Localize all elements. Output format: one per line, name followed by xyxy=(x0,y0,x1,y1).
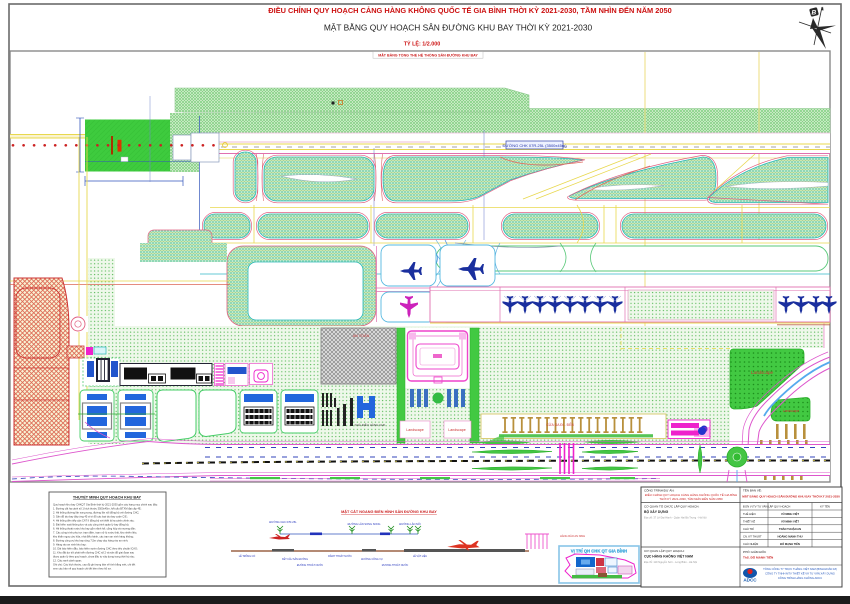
svg-text:Landscape: Landscape xyxy=(448,428,466,432)
svg-text:Landscape: Landscape xyxy=(406,428,424,432)
svg-text:1. Đường cất hạ cánh số 1 kích: 1. Đường cất hạ cánh số 1 kích thước 350… xyxy=(53,507,142,511)
svg-text:ĐIỀU CHỈNH QUY HOẠCH CẢNG HÀNG: ĐIỀU CHỈNH QUY HOẠCH CẢNG HÀNG KHÔNG QUỐ… xyxy=(268,5,671,15)
svg-text:NHÀ ĐIỀU HÀNH CHK: NHÀ ĐIỀU HÀNH CHK xyxy=(355,422,386,427)
svg-text:Quy hoạch khu bay CHKQT Gia Bì: Quy hoạch khu bay CHKQT Gia Bình thời kỳ… xyxy=(53,503,158,507)
svg-text:ĐƯỜNG CHK 07R-25L (3500x45m): ĐƯỜNG CHK 07R-25L (3500x45m) xyxy=(502,143,567,148)
svg-text:LỀ TRỒNG CỎ: LỀ TRỒNG CỎ xyxy=(239,555,256,558)
svg-text:ADCC: ADCC xyxy=(743,578,757,583)
svg-text:MẶT BẰNG QUY HOẠCH SÂN ĐƯỜNG K: MẶT BẰNG QUY HOẠCH SÂN ĐƯỜNG KHU BAY THỜ… xyxy=(324,23,593,33)
svg-text:khu khẩn nguy cứu hỏa, nhà điề: khu khẩn nguy cứu hỏa, nhà điều hành, cá… xyxy=(53,535,134,539)
svg-text:KẾT CẤU SÂN ĐƯỜNG: KẾT CẤU SÂN ĐƯỜNG xyxy=(282,558,308,561)
svg-text:VỊ TRÍ QH CHK QT GIA BÌNH: VỊ TRÍ QH CHK QT GIA BÌNH xyxy=(571,549,627,554)
svg-text:LỀ VẬT LIỆU: LỀ VẬT LIỆU xyxy=(413,555,427,558)
svg-text:MẶT BẰNG TỔNG THỂ HỆ THỐNG SÂN: MẶT BẰNG TỔNG THỂ HỆ THỐNG SÂN ĐƯỜNG KHU… xyxy=(378,53,478,58)
svg-text:2. Hệ thống đường lăn song son: 2. Hệ thống đường lăn song song, đường l… xyxy=(53,511,140,515)
svg-text:CỤC HÀNG KHÔNG VIỆT NAM: CỤC HÀNG KHÔNG VIỆT NAM xyxy=(644,554,693,559)
svg-text:8. Đường công vụ khu bay rộng: 8. Đường công vụ khu bay rộng 7,5m chạy … xyxy=(53,539,128,543)
svg-text:ĐƯỜNG THOÁT NƯỚC: ĐƯỜNG THOÁT NƯỚC xyxy=(297,564,324,567)
svg-text:MƯƠNG THOÁT NƯỚC: MƯƠNG THOÁT NƯỚC xyxy=(382,564,409,567)
svg-text:AN TOÀN: AN TOÀN xyxy=(353,334,370,338)
svg-text:xem các bản vẽ quy hoạch chi t: xem các bản vẽ quy hoạch chi tiết kèm th… xyxy=(53,567,112,571)
svg-text:12. Cây xanh cảnh quan;: 12. Cây xanh cảnh quan; xyxy=(53,559,82,563)
svg-text:MẶT BẰNG QUY HOẠCH SÂN ĐƯỜNG K: MẶT BẰNG QUY HOẠCH SÂN ĐƯỜNG KHU BAY THỜ… xyxy=(742,494,840,499)
svg-text:CƠ QUAN LẬP QUY HOẠCH:: CƠ QUAN LẬP QUY HOẠCH: xyxy=(644,548,685,553)
svg-text:CÔNG TRÌNH/DỰ ÁN:: CÔNG TRÌNH/DỰ ÁN: xyxy=(644,488,675,493)
svg-text:THỜI KỲ 2021-2030, TẦM NHÌN ĐẾ: THỜI KỲ 2021-2030, TẦM NHÌN ĐẾN NĂM 2050 xyxy=(659,496,723,501)
svg-text:HÀNG RÀO AN NINH: HÀNG RÀO AN NINH xyxy=(560,534,585,538)
svg-text:CỬA GA ĐI - ĐẾN: CỬA GA ĐI - ĐẾN xyxy=(546,422,574,427)
svg-text:RÃNH THOÁT NƯỚC: RÃNH THOÁT NƯỚC xyxy=(328,555,352,558)
svg-text:ThS. ĐỖ MẠNH TIẾN: ThS. ĐỖ MẠNH TIẾN xyxy=(743,555,774,560)
svg-text:Địa chỉ: 37 Lê Đại Hành - Quận: Địa chỉ: 37 Lê Đại Hành - Quận Hai Bà Tr… xyxy=(644,516,707,520)
svg-text:10. Dải bảo hiểm đầu, bảo hiểm: 10. Dải bảo hiểm đầu, bảo hiểm sườn đườn… xyxy=(53,547,138,551)
svg-text:Landscape: Landscape xyxy=(751,370,774,375)
svg-text:THUYẾT MINH QUY HOẠCH KHU BAY: THUYẾT MINH QUY HOẠCH KHU BAY xyxy=(73,495,142,500)
svg-text:được quản lý theo quy hoạch, c: được quản lý theo quy hoạch, chưa đầu tư… xyxy=(53,555,135,559)
svg-text:CƠ QUAN TỔ CHỨC LẬP QUY HOẠCH:: CƠ QUAN TỔ CHỨC LẬP QUY HOẠCH: xyxy=(644,504,699,509)
svg-text:4. Hệ thống đèn tiếp cận CAT I: 4. Hệ thống đèn tiếp cận CAT II đồng bộ … xyxy=(53,519,135,523)
svg-text:5. Đài kiểm soát không lưu và: 5. Đài kiểm soát không lưu và các công t… xyxy=(53,523,129,527)
svg-text:TỶ LỆ: 1/2.000: TỶ LỆ: 1/2.000 xyxy=(404,40,441,48)
svg-text:MẶT CẮT NGANG ĐIỂN HÌNH SÂN ĐƯ: MẶT CẮT NGANG ĐIỂN HÌNH SÂN ĐƯỜNG KHU BA… xyxy=(341,509,437,514)
svg-text:TÊN BẢN VẼ:: TÊN BẢN VẼ: xyxy=(743,488,762,493)
svg-text:PHÓ GIÁM ĐỐC: PHÓ GIÁM ĐỐC xyxy=(743,549,767,554)
svg-text:9. Hàng rào an ninh khu bay;: 9. Hàng rào an ninh khu bay; xyxy=(53,543,87,547)
svg-text:ĐƠN VỊ TV TƯ VẤN LẬP QUY HOẠCH: ĐƠN VỊ TV TƯ VẤN LẬP QUY HOẠCH xyxy=(743,505,790,509)
svg-text:B: B xyxy=(812,10,817,17)
svg-text:ĐƯỜNG CÔNG VỤ: ĐƯỜNG CÔNG VỤ xyxy=(361,558,382,561)
svg-text:Landscape: Landscape xyxy=(783,409,800,413)
svg-text:BỘ XÂY DỰNG: BỘ XÂY DỰNG xyxy=(644,509,669,514)
svg-text:7. Các công trình phụ trợ: trạ: 7. Các công trình phụ trợ: trạm điện, tr… xyxy=(53,531,137,535)
